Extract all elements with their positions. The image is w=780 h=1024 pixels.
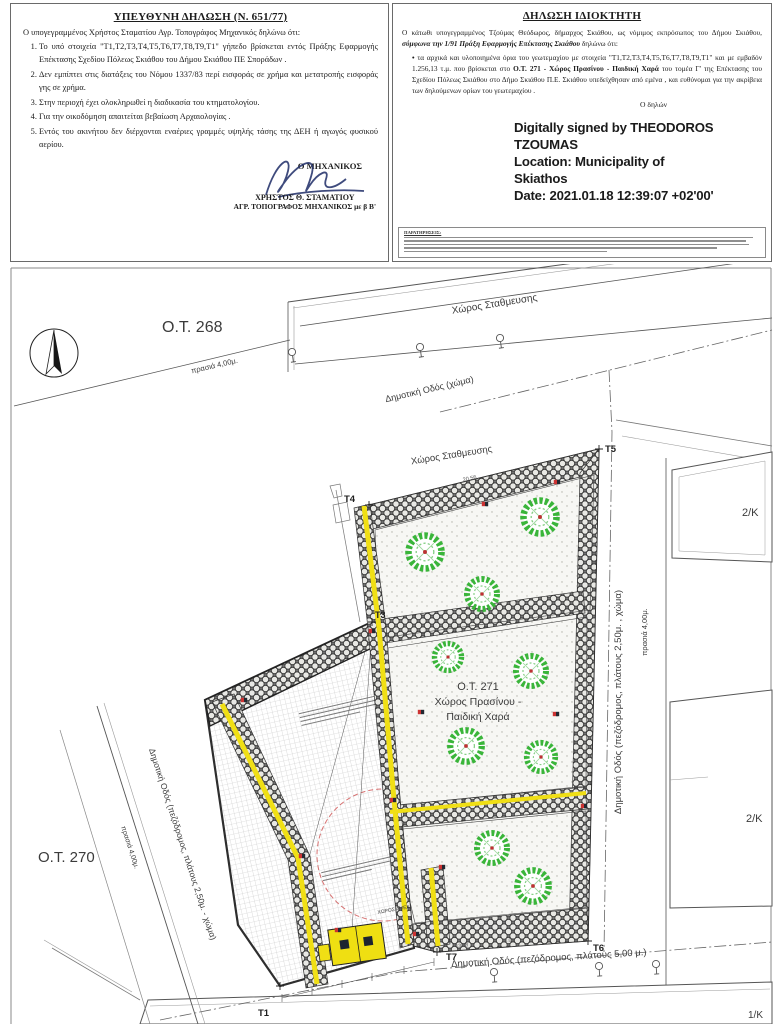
road-lines-top	[14, 264, 772, 462]
t-point-label-t3: T3	[375, 610, 386, 620]
block-label-ot271: Χώρος Πρασίνου -	[435, 696, 522, 708]
digital-signature-line: Date: 2021.01.18 12:39:07 +02'00'	[514, 187, 762, 204]
digital-signature-line: Skiathos	[514, 170, 762, 187]
notes-line	[404, 237, 753, 239]
road-label-left: Δημοτική Οδός (πεζόδρομος, πλάτους 2,50μ…	[147, 747, 219, 941]
tree-icon	[467, 579, 497, 609]
building-lower-right	[670, 690, 772, 908]
tree-icon	[435, 644, 462, 671]
owner-declaration-title: ΔΗΛΩΣΗ ΙΔΙΟΚΤΗΤΗ	[402, 10, 762, 22]
engineer-signature-area: Ο ΜΗΧΑΝΙΚΟΣ ΧΡΗΣΤΟΣ Θ. ΣΤΑΜΑΤΙΟΥ ΑΓΡ. ΤΟ…	[23, 153, 378, 215]
road-label-right: Δημοτική Οδός (πεζόδρομος, πλάτους 2,50μ…	[613, 590, 624, 814]
digital-signature-block: Digitally signed by THEODOROS TZOUMAS Lo…	[514, 119, 762, 205]
tree-icon	[524, 501, 557, 534]
declaration-item: Το υπό στοιχεία "Τ1,Τ2,Τ3,Τ4,Τ5,Τ6,Τ7,Τ8…	[39, 40, 378, 67]
prasia-label-right: πρασιά 4,00μ.	[640, 608, 649, 656]
owner-declaration-box: ΔΗΛΩΣΗ ΙΔΙΟΚΤΗΤΗ Ο κάτωθι υπογεγραμμένος…	[392, 3, 772, 262]
owner-declaration-bullet: • τα αρχικά και υλοποιημένα όρια του γεω…	[412, 52, 762, 97]
block-label-ot271: Ο.Τ. 271	[457, 681, 499, 693]
t-point-label-t5: T5	[605, 444, 617, 455]
digital-signature-line: TZOUMAS	[514, 136, 762, 153]
bullet-marker: •	[412, 53, 415, 62]
owner-declaration-intro: Ο κάτωθι υπογεγραμμένος Τζούμας Θεόδωρος…	[402, 27, 762, 50]
north-arrow-icon	[30, 329, 78, 377]
t-point-label-t4: T4	[344, 494, 356, 505]
engineer-name: ΧΡΗΣΤΟΣ Θ. ΣΤΑΜΑΤΙΟΥ	[234, 193, 376, 202]
building-label-2k-lower: 2/Κ	[746, 813, 763, 825]
notes-line	[404, 244, 749, 246]
parking-label-inner: Χώρος Σταθμευσης	[410, 444, 493, 468]
t-point-label-t1: T1	[258, 1008, 270, 1019]
notes-line	[404, 240, 746, 242]
tree-icon	[527, 743, 556, 772]
engineer-declaration-box: ΥΠΕΥΘΥΝΗ ΔΗΛΩΣΗ (Ν. 651/77) Ο υπογεγραμμ…	[10, 3, 389, 262]
engineer-declaration-intro: Ο υπογεγραμμένος Χρήστος Σταματίου Αγρ. …	[23, 28, 378, 37]
engineer-declaration-items: Το υπό στοιχεία "Τ1,Τ2,Τ3,Τ4,Τ5,Τ6,Τ7,Τ8…	[23, 40, 378, 152]
intro-emphasis: σύμφωνα την 1/91 Πράξη Εφαρμογής Επέκτασ…	[402, 39, 580, 48]
parking-label-top: Χώρος Σταθμευσης	[451, 291, 538, 316]
building-bottom	[140, 982, 772, 1024]
notes-box: ΠΑΡΑΤΗΡΗΣΕΙΣ:	[398, 227, 766, 259]
street-lamp-icons-top	[288, 334, 505, 362]
tree-icon	[477, 833, 507, 863]
road-label-top: Δημοτική Οδός (χώμα)	[384, 374, 474, 404]
declarant-label: Ο δηλών	[640, 100, 762, 109]
bullet-emphasis: Ο.Τ. 271 - Χώρος Πρασίνου - Παιδική Χαρά	[513, 64, 659, 73]
block-label-ot270: Ο.Τ. 270	[38, 849, 95, 866]
digital-signature-line: Digitally signed by THEODOROS	[514, 119, 762, 136]
site-plan: Ο.Τ. 268 Ο.Τ. 270 Ο.Τ. 271 Χώρος Πρασίνο…	[0, 264, 780, 1024]
t-point-label-t6: T6	[593, 943, 604, 954]
notes-line	[404, 251, 607, 253]
prasia-label-top: πρασιά 4,00μ.	[190, 356, 238, 375]
road-label-bottom: Δημοτική Οδός (πεζόδρομος, πλάτους 5,00 …	[451, 947, 647, 970]
tree-icon	[516, 656, 546, 686]
notes-title: ΠΑΡΑΤΗΡΗΣΕΙΣ:	[404, 230, 760, 235]
engineer-title: ΑΓΡ. ΤΟΠΟΓΡΑΦΟΣ ΜΗΧΑΝΙΚΟΣ με β Β'	[234, 202, 376, 211]
declaration-item: Στην περιοχή έχει ολοκληρωθεί η διαδικασ…	[39, 96, 378, 109]
intro-text: Ο κάτωθι υπογεγραμμένος Τζούμας Θεόδωρος…	[402, 28, 762, 37]
declaration-item: Δεν εμπίπτει στις διατάξεις του Νόμου 13…	[39, 68, 378, 95]
declaration-item: Εντός του ακινήτου δεν διέρχονται εναέρι…	[39, 125, 378, 152]
declaration-item: Για την οικοδόμηση απαιτείται βεβαίωση Α…	[39, 110, 378, 123]
scanned-document-page: ΥΠΕΥΘΥΝΗ ΔΗΛΩΣΗ (Ν. 651/77) Ο υπογεγραμμ…	[0, 0, 780, 1024]
t-point-label-t7: T7	[446, 952, 457, 963]
block-label-ot271: Παιδική Χαρά	[446, 711, 509, 723]
engineer-declaration-title: ΥΠΕΥΘΥΝΗ ΔΗΛΩΣΗ (Ν. 651/77)	[23, 11, 378, 23]
notes-line	[404, 247, 717, 249]
building-label-1k: 1/Κ	[748, 1010, 763, 1021]
intro-text: δηλώνω ότι:	[582, 39, 618, 48]
tree-icon	[450, 730, 482, 762]
tree-icon	[517, 870, 549, 902]
building-label-2k-upper: 2/Κ	[742, 507, 759, 519]
engineer-signature-names: ΧΡΗΣΤΟΣ Θ. ΣΤΑΜΑΤΙΟΥ ΑΓΡ. ΤΟΠΟΓΡΑΦΟΣ ΜΗΧ…	[234, 193, 376, 211]
tree-icon	[409, 536, 442, 569]
digital-signature-line: Location: Municipality of	[514, 153, 762, 170]
block-label-ot268: Ο.Τ. 268	[162, 319, 223, 336]
